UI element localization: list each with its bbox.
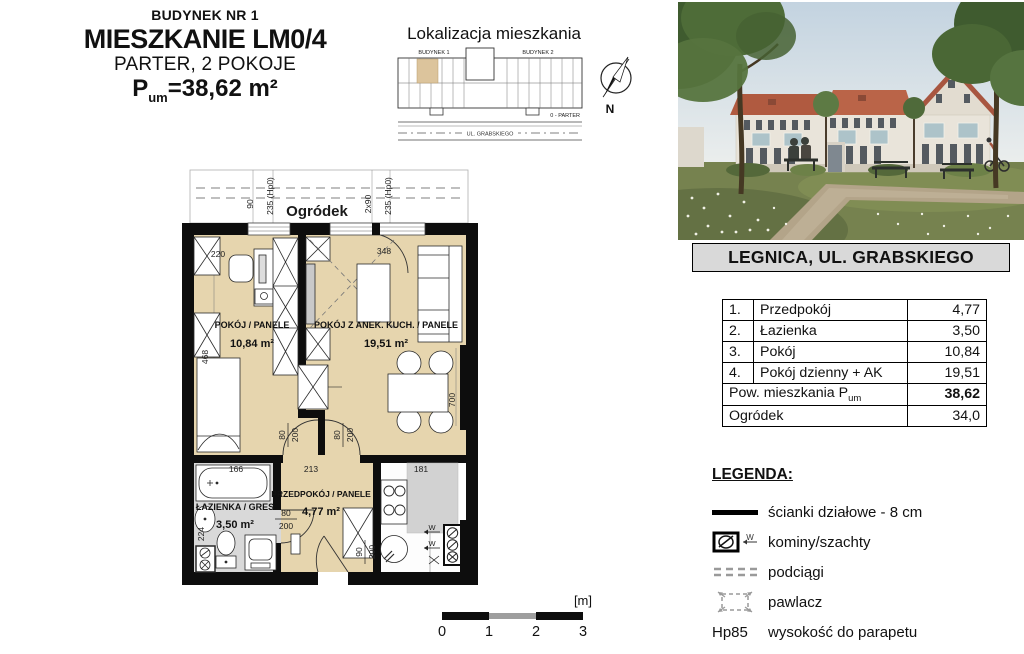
bath-label: ŁAZIENKA / GRES: [196, 502, 274, 512]
floor-note: 0 - PARTER: [550, 113, 580, 119]
address-bar: LEGNICA, UL. GRABSKIEGO: [692, 243, 1010, 272]
entrance-door: [828, 145, 842, 172]
north-label: N: [606, 102, 615, 116]
dim-235-hp0: 235 (Hp0): [265, 177, 275, 215]
row-number: 1.: [723, 300, 754, 321]
room-name: Przedpokój: [754, 300, 908, 321]
total-label: Pow. mieszkania Pum: [723, 384, 908, 406]
apartment-id: MIESZKANIE LM0/4: [70, 24, 340, 54]
total-label-sub: um: [848, 393, 861, 404]
building2-label: BUDYNEK 2: [522, 50, 553, 56]
localization-title: Lokalizacja mieszkania: [396, 24, 592, 44]
legend-item-sill: Hp85 wysokość do parapetu: [712, 617, 1012, 647]
bed: [197, 358, 240, 452]
room-name: Łazienka: [754, 321, 908, 342]
legend: LEGENDA: ścianki działowe - 8 cm W komin…: [712, 466, 1012, 647]
svg-text:700: 700: [447, 393, 457, 407]
svg-text:90: 90: [354, 547, 364, 557]
room1-label: POKÓJ / PANELE: [215, 319, 290, 330]
floor-plan: Ogródek 90 235 (Hp0) 2x90 235 (Hp0): [172, 158, 502, 600]
room2-area: 19,51 m²: [364, 338, 408, 350]
scale-segment: [536, 612, 583, 620]
total-label-text: Pow. mieszkania P: [729, 385, 848, 401]
svg-text:224: 224: [196, 527, 206, 541]
row-number: 2.: [723, 321, 754, 342]
svg-text:200: 200: [290, 428, 300, 442]
scale-tick-0: 0: [434, 624, 450, 640]
table-row: 4. Pokój dzienny + AK 19,51: [723, 363, 987, 384]
svg-text:181: 181: [414, 464, 428, 474]
usable-area: Pum=38,62 m²: [70, 76, 340, 105]
hall-area: 4,77 m²: [302, 506, 340, 518]
room-name: Pokój: [754, 342, 908, 363]
row-number: 4.: [723, 363, 754, 384]
development-render: [678, 2, 1024, 240]
toilet: [217, 531, 235, 555]
svg-text:80: 80: [281, 508, 291, 518]
legend-item-chimneys: W kominy/szachty: [712, 527, 1012, 557]
highlighted-unit: [417, 59, 438, 83]
compass-north-icon: N: [592, 50, 640, 116]
hall-label: PRZEDPOKÓJ / PANELE: [271, 488, 371, 499]
building-number: BUDYNEK NR 1: [70, 8, 340, 24]
svg-text:468: 468: [200, 350, 210, 364]
beam-symbol: [712, 565, 764, 579]
svg-text:80: 80: [277, 430, 287, 440]
table-row: 3. Pokój 10,84: [723, 342, 987, 363]
garden-label: Ogródek: [286, 203, 348, 220]
tv: [306, 264, 315, 324]
room-area: 3,50: [908, 321, 987, 342]
scale-unit: [m]: [574, 593, 592, 608]
room-area: 19,51: [908, 363, 987, 384]
scale-tick-2: 2: [528, 624, 544, 640]
svg-text:W: W: [428, 539, 436, 548]
chimney-shaft: [444, 525, 461, 565]
svg-text:166: 166: [229, 464, 243, 474]
title-block: BUDYNEK NR 1 MIESZKANIE LM0/4 PARTER, 2 …: [70, 8, 340, 106]
legend-item-beams: podciągi: [712, 557, 1012, 587]
sill-symbol: Hp85: [712, 624, 768, 641]
scale-tick-1: 1: [481, 624, 497, 640]
area-symbol: P: [132, 75, 148, 102]
table-total-row: Pow. mieszkania Pum 38,62: [723, 384, 987, 406]
site-plan-diagram: BUDYNEK 1 BUDYNEK 2 0 - PARTER UL. GRABS…: [390, 42, 590, 147]
legend-title: LEGENDA:: [712, 466, 1012, 484]
scale-segment: [442, 612, 489, 620]
svg-text:W: W: [428, 523, 436, 532]
area-subscript: um: [148, 90, 168, 105]
room1-area: 10,84 m²: [230, 338, 274, 350]
total-area: 38,62: [908, 384, 987, 406]
washing-machine: [245, 535, 276, 570]
room2-label: POKÓJ Z ANEK. KUCH. / PANELE: [314, 319, 458, 330]
svg-text:W: W: [746, 533, 754, 542]
row-number: 3.: [723, 342, 754, 363]
svg-text:80: 80: [332, 430, 342, 440]
windows: [248, 223, 425, 235]
floor-rooms: PARTER, 2 POKOJE: [70, 54, 340, 75]
room-name: Pokój dzienny + AK: [754, 363, 908, 384]
garden-label: Ogródek: [723, 405, 908, 426]
dim-90: 90: [245, 199, 255, 209]
legend-item-storage: pawlacz: [712, 587, 1012, 617]
area-value: =38,62 m²: [168, 75, 278, 102]
svg-text:348: 348: [377, 246, 391, 256]
legend-item-walls: ścianki działowe - 8 cm: [712, 497, 1012, 527]
scale-segment: [489, 613, 536, 619]
bath-area: 3,50 m²: [216, 519, 254, 531]
svg-text:213: 213: [304, 464, 318, 474]
desk-chair: [229, 255, 253, 282]
garden-area: Ogródek 90 235 (Hp0) 2x90 235 (Hp0): [190, 170, 468, 223]
room-area: 10,84: [908, 342, 987, 363]
storage-symbol: [712, 590, 764, 614]
bath-shaft: [196, 546, 215, 572]
garden-area: 34,0: [908, 405, 987, 426]
wall-symbol: [712, 510, 758, 515]
street-label: UL. GRABSKIEGO: [467, 132, 514, 138]
scale-bar: [m] 0 1 2 3: [436, 593, 606, 649]
building1-label: BUDYNEK 1: [418, 50, 449, 56]
table-row: 1. Przedpokój 4,77: [723, 300, 987, 321]
dim-235-hp0-b: 235 (Hp0): [383, 177, 393, 215]
area-table: 1. Przedpokój 4,77 2. Łazienka 3,50 3. P…: [722, 299, 987, 427]
room-area: 4,77: [908, 300, 987, 321]
svg-text:220: 220: [211, 249, 225, 259]
table-garden-row: Ogródek 34,0: [723, 405, 987, 426]
svg-text:200: 200: [367, 545, 377, 559]
dining-set: [388, 351, 453, 433]
scale-tick-3: 3: [575, 624, 591, 640]
svg-text:200: 200: [279, 521, 293, 531]
table-row: 2. Łazienka 3,50: [723, 321, 987, 342]
chimney-symbol: W: [712, 531, 764, 553]
svg-text:200: 200: [345, 428, 355, 442]
dim-2x90: 2x90: [363, 195, 373, 214]
